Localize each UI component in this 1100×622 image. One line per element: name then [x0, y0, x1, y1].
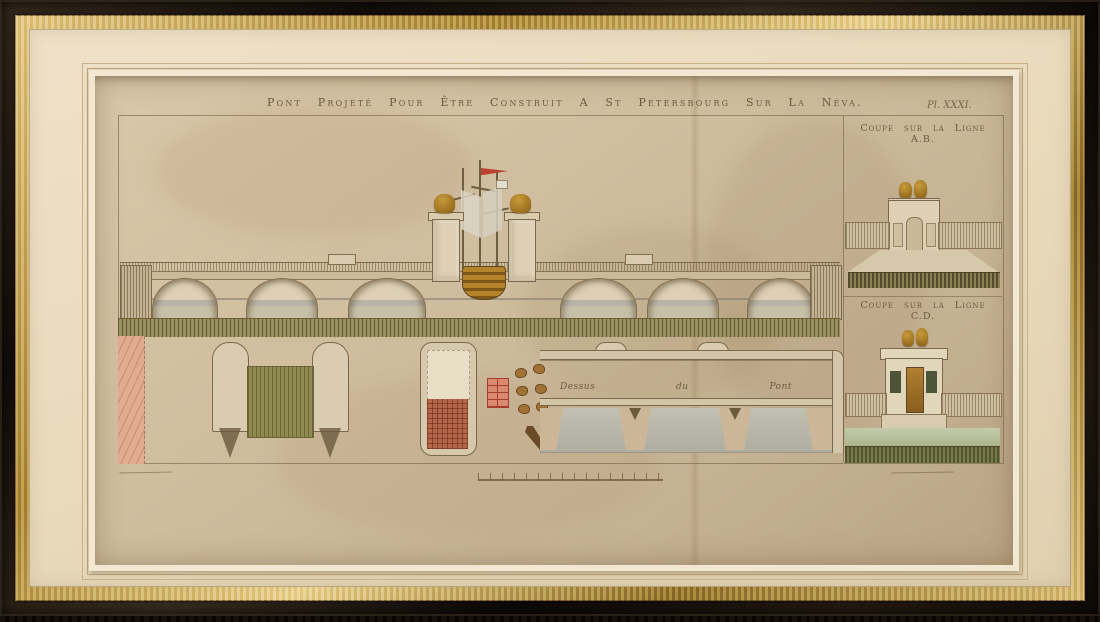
plate-number: Pl. XXXI. [927, 100, 972, 111]
red-grid-detail [487, 378, 509, 408]
engraver-signature-left [119, 465, 175, 474]
pier-plan [212, 342, 249, 432]
detail-row-divider [843, 296, 1002, 297]
gate-pylon-right [508, 219, 536, 282]
quay-wall-section [845, 222, 890, 249]
parapet-refuge [625, 254, 653, 265]
quay-wall-section [938, 222, 1002, 249]
dark-side-panel [890, 371, 901, 393]
pile-head [518, 404, 530, 414]
side-niche [893, 223, 903, 247]
riverbed-band [118, 318, 840, 337]
cutwater-plan [540, 408, 570, 450]
framed-engraving-photo: Pont Projeté Pour Être Construit A St Pe… [0, 0, 1100, 622]
pile-head [516, 386, 528, 396]
water-plan-band [540, 408, 840, 453]
dark-side-panel [926, 371, 937, 393]
gold-statue [902, 330, 914, 346]
parapet-rail-plan [540, 350, 836, 360]
foundation-core [427, 350, 470, 400]
abutment-left [120, 265, 152, 320]
pile-head [515, 368, 527, 378]
pile-band [848, 272, 1000, 288]
pier-foundation-plan [420, 342, 477, 456]
quay-masonry-plan [118, 336, 145, 464]
ship-hull [462, 266, 506, 300]
small-flag [496, 180, 508, 189]
engraving-paper: Pont Projeté Pour Être Construit A St Pe… [95, 76, 1013, 565]
quay-corner-plan [832, 350, 844, 453]
section-ab-label: Coupe sur la Ligne A.B. [847, 123, 999, 145]
gold-statue [914, 180, 927, 198]
center-niche [906, 217, 923, 254]
abutment-right [810, 265, 842, 320]
center-door-panel [906, 367, 924, 413]
brick-pilework [427, 399, 468, 449]
quay-wall-section [941, 393, 1002, 417]
plan-label-word: Dessus [560, 382, 595, 392]
section-cd-label: Coupe sur la Ligne C.D. [847, 300, 999, 322]
gold-statue [899, 182, 912, 198]
plate-title: Pont Projeté Pour Être Construit A St Pe… [267, 96, 863, 109]
span-foundation-wash [247, 366, 314, 438]
lower-rail-plan [540, 398, 836, 406]
ship-sail [483, 184, 502, 238]
plan-label-word: du [676, 382, 689, 392]
gate-section-cd [885, 358, 943, 416]
side-niche [926, 223, 936, 247]
gate-section-ab [888, 198, 940, 254]
water-band-cd [845, 428, 1000, 446]
gate-pylon-left [432, 219, 460, 282]
deck-plan-band: Dessus du Pont [540, 360, 836, 398]
scale-bar [478, 473, 663, 481]
gold-statue [434, 194, 455, 213]
engraver-signature-right [891, 464, 957, 473]
floor-edge [0, 616, 1100, 622]
gold-statue [510, 194, 531, 213]
parapet-refuge [328, 254, 356, 265]
pier-plan [312, 342, 349, 432]
gold-statue [916, 328, 928, 346]
plan-label-word: Pont [769, 382, 792, 392]
pile-band [845, 446, 1000, 463]
